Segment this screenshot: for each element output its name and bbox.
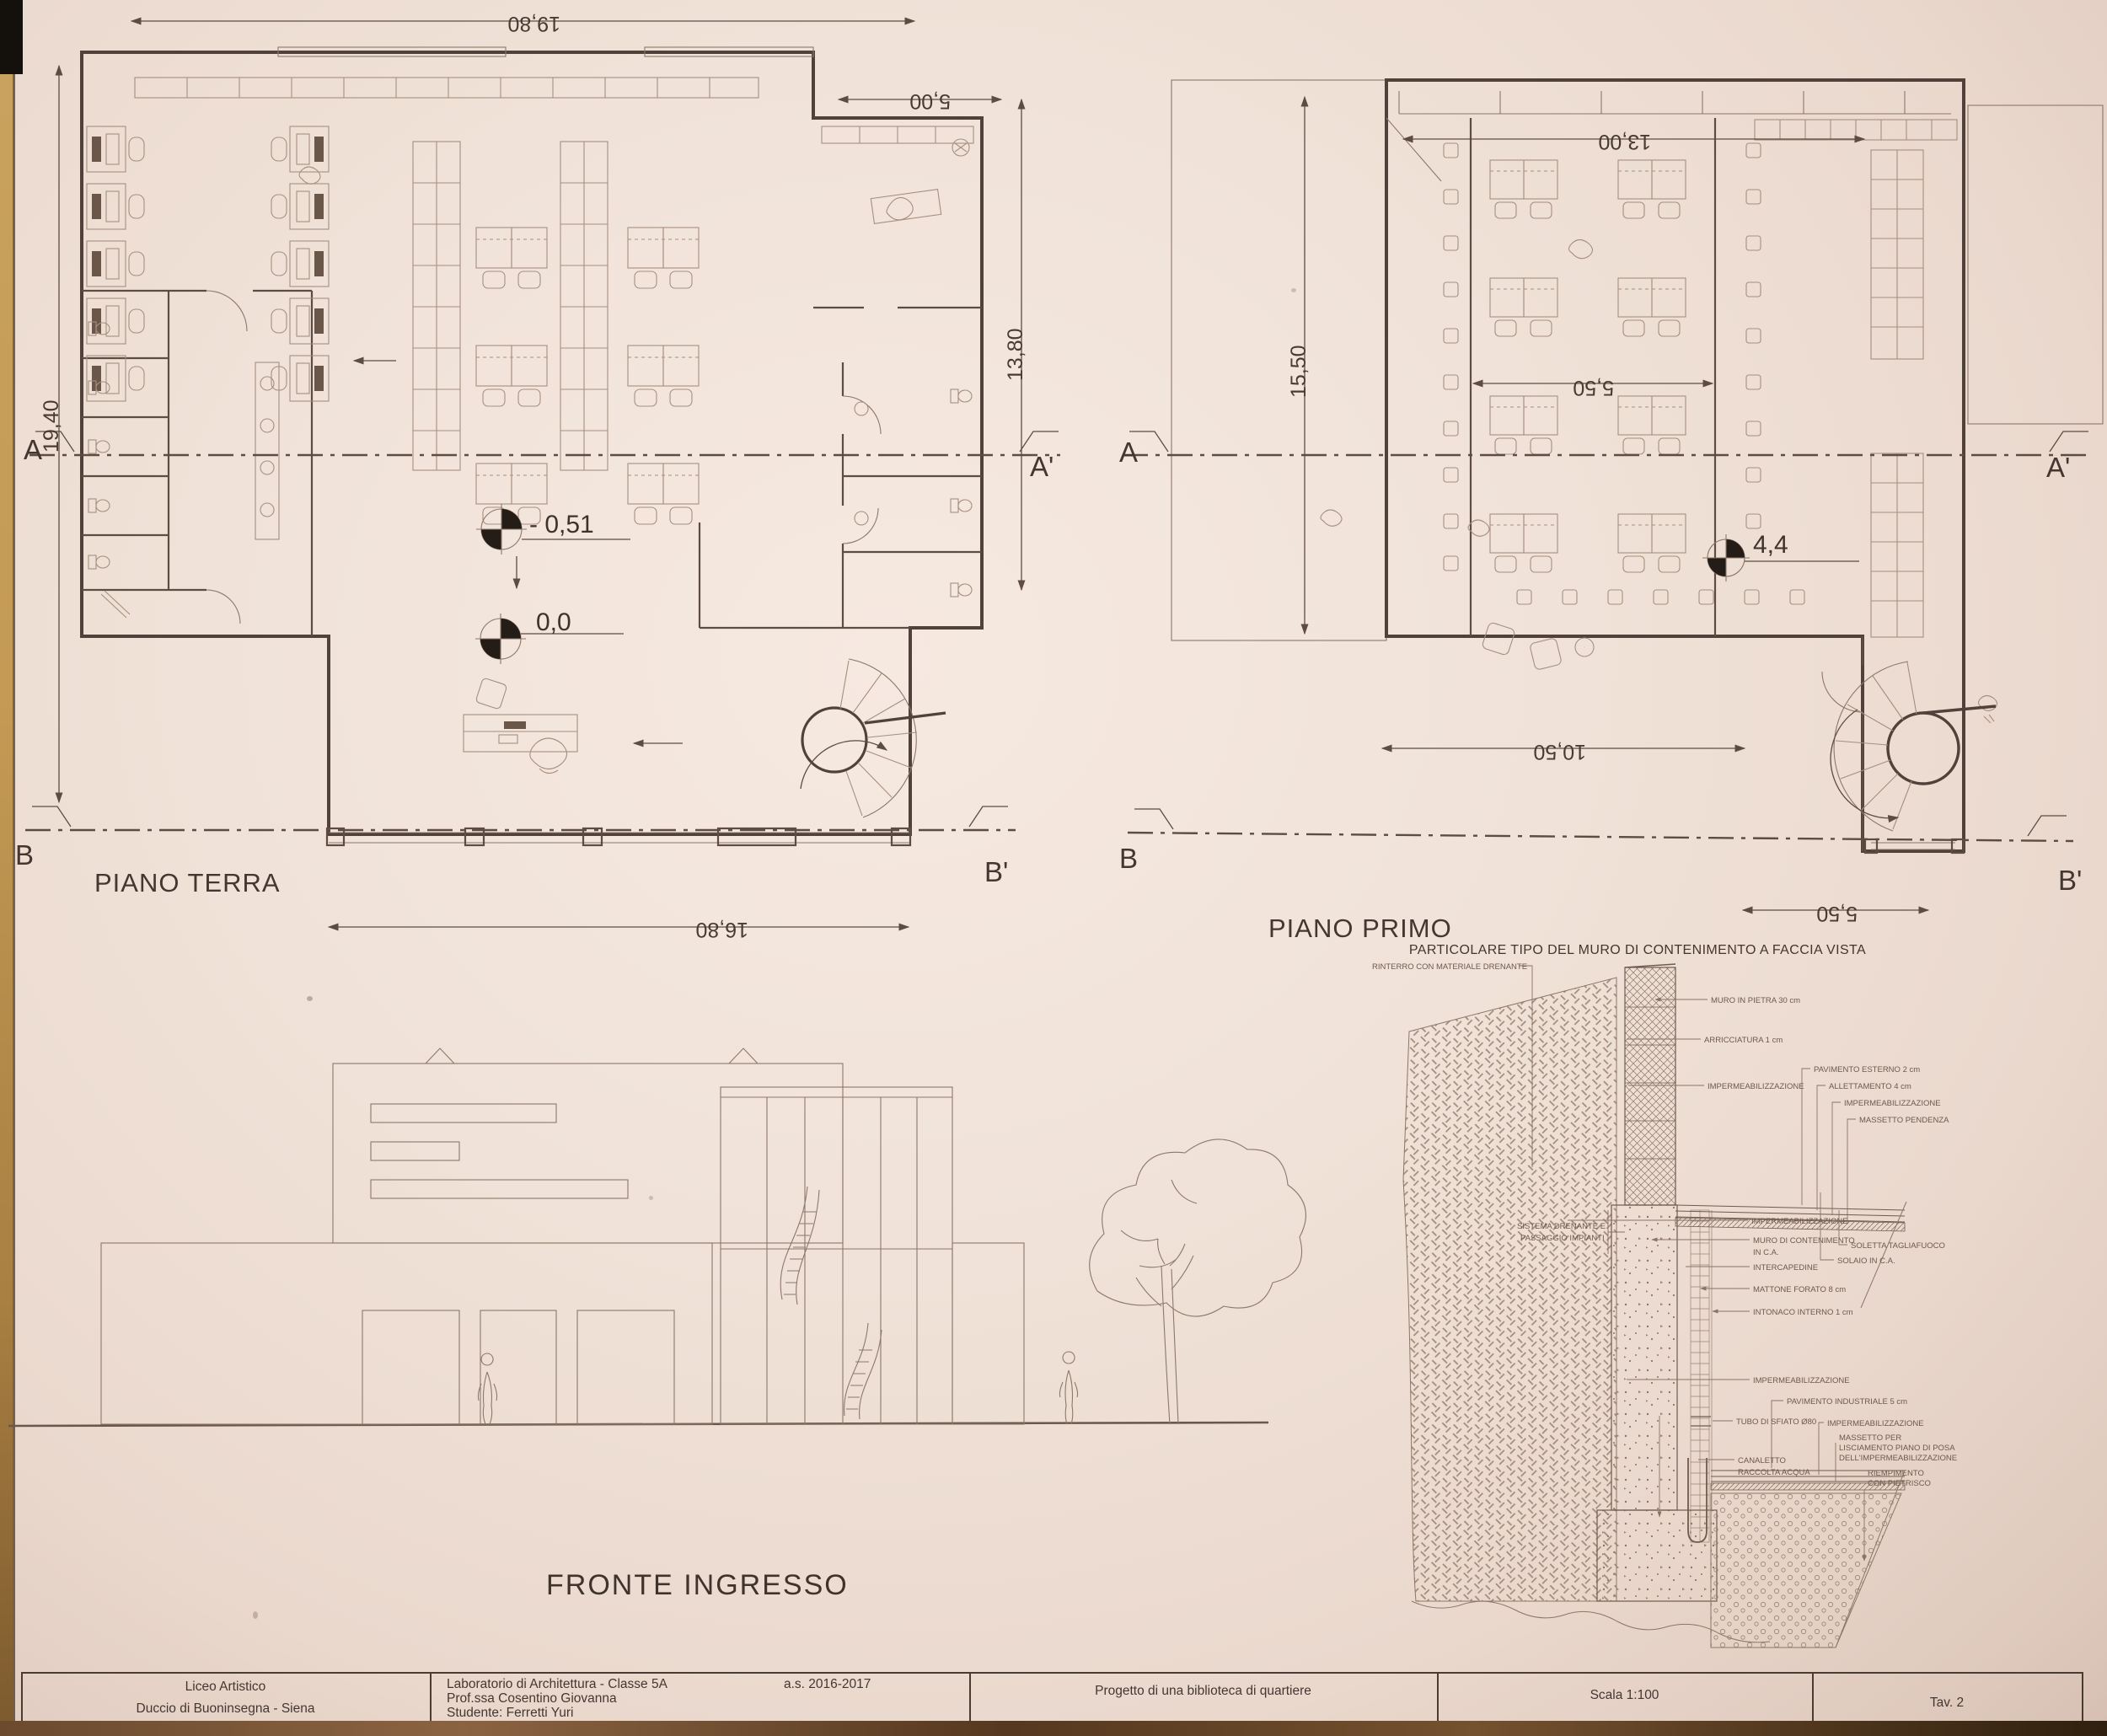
ann-arricciatura: ARRICCIATURA 1 cm (1704, 1036, 1783, 1045)
ann-sistema-drenante-1: SISTEMA DRENANTE E (1517, 1222, 1606, 1231)
section-a: A (24, 434, 42, 465)
section-b1: B' (2058, 865, 2082, 896)
ann-riempimento-2: CON PIETRISCO (1868, 1479, 1931, 1488)
level-inner: - 0,51 (529, 511, 594, 538)
primo-walls (1171, 80, 2103, 853)
school-name: Liceo Artistico (21, 1680, 430, 1695)
ann-imperm-1: IMPERMEABILIZZAZIONE (1708, 1082, 1804, 1091)
primo-level-marker: 4,4 (1702, 531, 1859, 581)
dim-19-40: 19,40 (40, 399, 63, 453)
school-year: a.s. 2016-2017 (784, 1677, 871, 1692)
primo-furniture (1321, 120, 1997, 831)
top-shelf-band (135, 78, 759, 98)
primo-dimensions: 13,00 15,50 5,50 10,50 5,50 (1287, 97, 1928, 925)
elevation-title: FRONTE INGRESSO (546, 1569, 849, 1601)
ann-muro-cont-1: MURO DI CONTENIMENTO (1753, 1236, 1855, 1246)
office-desk (871, 190, 941, 224)
terra-walls (82, 47, 982, 845)
elevation-linework (8, 1048, 1305, 1426)
dim-10-50: 10,50 (1533, 740, 1586, 764)
level-4-4: 4,4 (1753, 531, 1788, 559)
spiral-stair (801, 659, 946, 817)
ann-muro-pietra: MURO IN PIETRA 30 cm (1711, 996, 1800, 1005)
ann-imperm-5: IMPERMEABILIZZAZIONE (1827, 1419, 1924, 1428)
terra-level-markers: - 0,51 0,0 (475, 504, 630, 664)
ann-canaletto-2: RACCOLTA ACQUA (1738, 1468, 1810, 1477)
plan-terra-title: PIANO TERRA (94, 868, 281, 897)
section-b1: B' (984, 856, 1008, 887)
course-name: Laboratorio di Architettura - Classe 5A (447, 1677, 667, 1692)
section-b: B (15, 839, 34, 871)
ann-rinterro: RINTERRO CON MATERIALE DRENANTE (1372, 962, 1527, 972)
student-name: Studente: Ferretti Yuri (447, 1706, 574, 1721)
school-city: Duccio di Buoninsegna - Siena (21, 1701, 430, 1717)
dim-5-50: 5,50 (1573, 376, 1614, 399)
ann-allettamento: ALLETTAMENTO 4 cm (1829, 1082, 1911, 1091)
ann-imperm-2: IMPERMEABILIZZAZIONE (1844, 1099, 1941, 1108)
sheet-number: Tav. 2 (1812, 1696, 2082, 1711)
ann-intercapedine: INTERCAPEDINE (1753, 1263, 1818, 1273)
dim-15-50: 15,50 (1287, 345, 1311, 398)
ann-massetto-lisc-3: DELL'IMPERMEABILIZZAZIONE (1839, 1454, 1957, 1463)
ann-pav-esterno: PAVIMENTO ESTERNO 2 cm (1814, 1065, 1920, 1074)
section-b: B (1119, 843, 1138, 874)
ann-soletta: SOLETTA TAGLIAFUOCO (1851, 1241, 1945, 1251)
floor-plan-piano-primo: 13,00 15,50 5,50 10,50 5,50 4,4 A A' B B… (1112, 0, 2107, 952)
ann-massetto-lisc-2: LISCIAMENTO PIANO DI POSA (1839, 1444, 1955, 1453)
terra-furniture (87, 78, 973, 817)
title-block: Liceo Artistico Duccio di Buoninsegna - … (21, 1672, 2083, 1724)
scanned-drawing-sheet: 19,80 5,00 19,40 13,80 16,80 - 0,51 (0, 0, 2107, 1736)
ann-sistema-drenante-2: PASSAGGIO IMPIANTI (1520, 1234, 1605, 1243)
detail-title: PARTICOLARE TIPO DEL MURO DI CONTENIMENT… (1409, 943, 1866, 957)
ann-massetto-pendenza: MASSETTO PENDENZA (1859, 1116, 1949, 1125)
elevation-fronte-ingresso: FRONTE INGRESSO (0, 969, 1315, 1652)
ann-muro-cont-2: IN C.A. (1753, 1248, 1779, 1257)
ann-solaio: SOLAIO IN C.A. (1837, 1256, 1895, 1266)
desk-surface (0, 1721, 2107, 1736)
ann-massetto-lisc-1: MASSETTO PER (1839, 1433, 1901, 1443)
section-a1: A' (2046, 452, 2070, 483)
dim-13-80: 13,80 (1004, 328, 1027, 381)
project-title: Progetto di una biblioteca di quartiere (969, 1684, 1437, 1699)
ann-pav-industriale: PAVIMENTO INDUSTRIALE 5 cm (1787, 1397, 1907, 1406)
ann-riempimento-1: RIEMPIMENTO (1868, 1469, 1924, 1478)
level-entry: 0,0 (536, 608, 571, 636)
spiral-stair (1831, 662, 1996, 831)
dim-16-80: 16,80 (695, 918, 748, 941)
dim-stair-5-50: 5,50 (1816, 902, 1858, 925)
titleblock-divider (2082, 1674, 2083, 1723)
section-a1: A' (1030, 451, 1053, 482)
dim-19-80: 19,80 (507, 12, 560, 35)
ann-mattone: MATTONE FORATO 8 cm (1753, 1285, 1846, 1294)
ann-tubo-sfiato: TUBO DI SFIATO Ø80 (1736, 1417, 1816, 1427)
drawing-scale: Scala 1:100 (1437, 1688, 1812, 1703)
floor-plan-piano-terra: 19,80 5,00 19,40 13,80 16,80 - 0,51 (0, 0, 1112, 952)
ann-imperm-3: IMPERMEABILIZZAZIONE (1751, 1217, 1848, 1226)
ann-intonaco: INTONACO INTERNO 1 cm (1753, 1308, 1853, 1317)
retaining-wall-detail: PARTICOLARE TIPO DEL MURO DI CONTENIMENT… (1315, 927, 2107, 1669)
ann-imperm-4: IMPERMEABILIZZAZIONE (1753, 1376, 1850, 1385)
dim-5-00: 5,00 (909, 89, 951, 113)
ann-canaletto-1: CANALETTO (1738, 1456, 1786, 1465)
section-a: A (1119, 437, 1138, 468)
professor-name: Prof.ssa Cosentino Giovanna (447, 1691, 617, 1707)
dim-13-00: 13,00 (1598, 130, 1651, 153)
titleblock-divider (430, 1674, 432, 1723)
reception-desk (464, 678, 577, 773)
